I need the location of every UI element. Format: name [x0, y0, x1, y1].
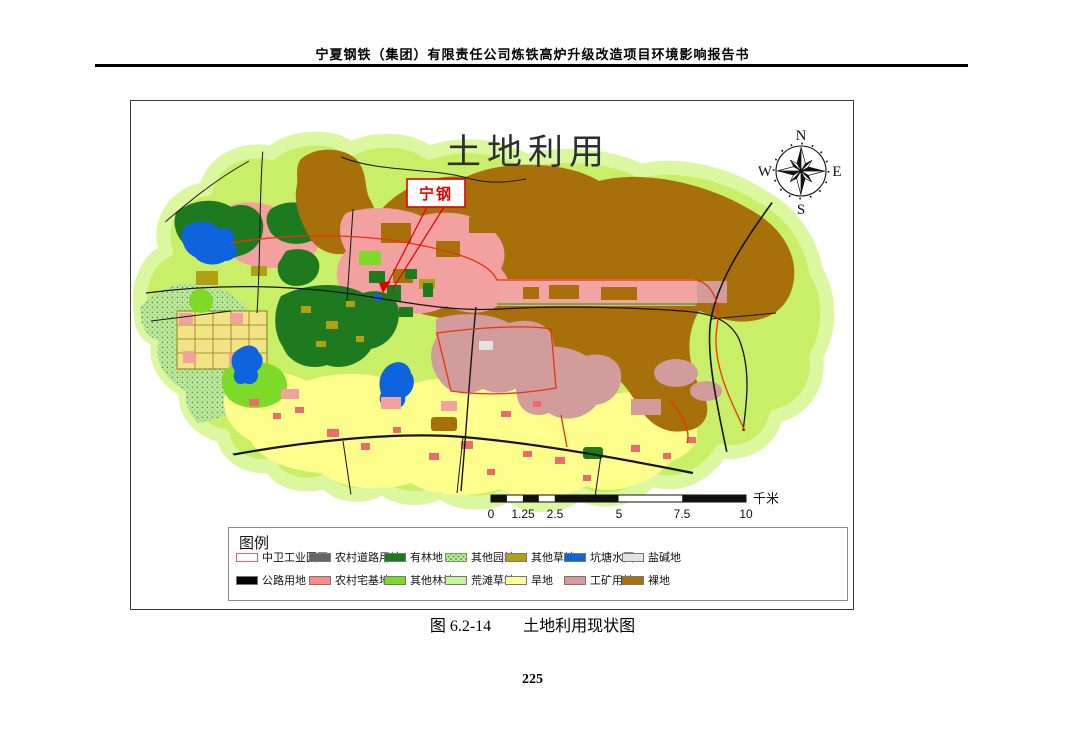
- legend-swatch-pond: [564, 553, 586, 562]
- mining-rose-area-5: [631, 399, 661, 415]
- compass-e: E: [832, 164, 841, 180]
- mining-rose-area-3: [654, 359, 698, 387]
- compass-n: N: [796, 128, 807, 144]
- map-legend: 图例 中卫工业园区 农村道路用地 有林地 其他园地 其他草地 坑塘水面 盐碱地 …: [228, 527, 848, 601]
- legend-swatch-bareland: [622, 576, 644, 585]
- figure-caption: 图 6.2-14 土地利用现状图: [0, 612, 1065, 636]
- saline-gray-patch: [479, 341, 493, 350]
- compass-w: W: [758, 164, 773, 180]
- legend-swatch-other-grass: [505, 553, 527, 562]
- legend-swatch-highway: [236, 576, 258, 585]
- grass-olive-speckle: [316, 341, 326, 347]
- header-rule: [95, 64, 968, 67]
- legend-swatch-other-forest: [384, 576, 406, 585]
- legend-swatch-dryland: [505, 576, 527, 585]
- legend-item: 其他林地: [384, 574, 454, 586]
- legend-swatch-industrial-park: [236, 553, 258, 562]
- legend-item: 有林地: [384, 551, 443, 563]
- grass-olive-patch: [196, 271, 218, 285]
- scale-unit: 千米: [753, 491, 779, 506]
- report-page: 宁夏钢铁（集团）有限责任公司炼铁高炉升级改造项目环境影响报告书: [0, 0, 1065, 753]
- scale-tick-5: 10: [739, 507, 753, 521]
- callout-label: 宁钢: [419, 185, 453, 203]
- brightgreen-patch-3: [189, 289, 213, 313]
- page-number: 225: [0, 672, 1065, 688]
- bareland-in-village: [469, 217, 495, 233]
- mining-rose-area-4: [690, 381, 722, 401]
- map-title: 土地利用: [446, 133, 610, 172]
- land-use-map-figure: 土地利用 宁钢 N: [130, 100, 854, 610]
- bareland-lump: [774, 280, 788, 294]
- bareland-lump: [759, 259, 779, 279]
- legend-swatch-waste-grass: [445, 576, 467, 585]
- scale-tick-3: 5: [616, 507, 623, 521]
- grass-olive-speckle: [356, 336, 364, 342]
- legend-swatch-homestead: [309, 576, 331, 585]
- grass-olive-speckle: [326, 321, 338, 329]
- scale-tick-1: 1.25: [511, 507, 535, 521]
- grass-olive-speckle: [346, 301, 355, 307]
- scale-tick-2: 2.5: [547, 507, 564, 521]
- legend-item: 裸地: [622, 574, 670, 586]
- bareland-lump: [431, 417, 457, 431]
- scale-tick-4: 7.5: [674, 507, 691, 521]
- legend-swatch-orchard: [445, 553, 467, 562]
- bareland-in-strip: [601, 287, 637, 300]
- legend-swatch-rural-road: [309, 553, 331, 562]
- brightgreen-patch-2: [359, 251, 381, 265]
- document-header-title: 宁夏钢铁（集团）有限责任公司炼铁高炉升级改造项目环境影响报告书: [0, 44, 1065, 63]
- grass-olive-speckle: [301, 306, 311, 313]
- legend-item: 农村宅基地: [309, 574, 390, 586]
- scale-tick-0: 0: [488, 507, 495, 521]
- legend-item: 盐碱地: [622, 551, 681, 563]
- bareland-in-strip: [549, 285, 579, 299]
- compass-s: S: [797, 202, 805, 218]
- legend-swatch-saline: [622, 553, 644, 562]
- legend-item: 公路用地: [236, 574, 306, 586]
- legend-swatch-mining: [564, 576, 586, 585]
- legend-swatch-forest: [384, 553, 406, 562]
- legend-item: 旱地: [505, 574, 553, 586]
- bareland-in-strip: [523, 287, 539, 299]
